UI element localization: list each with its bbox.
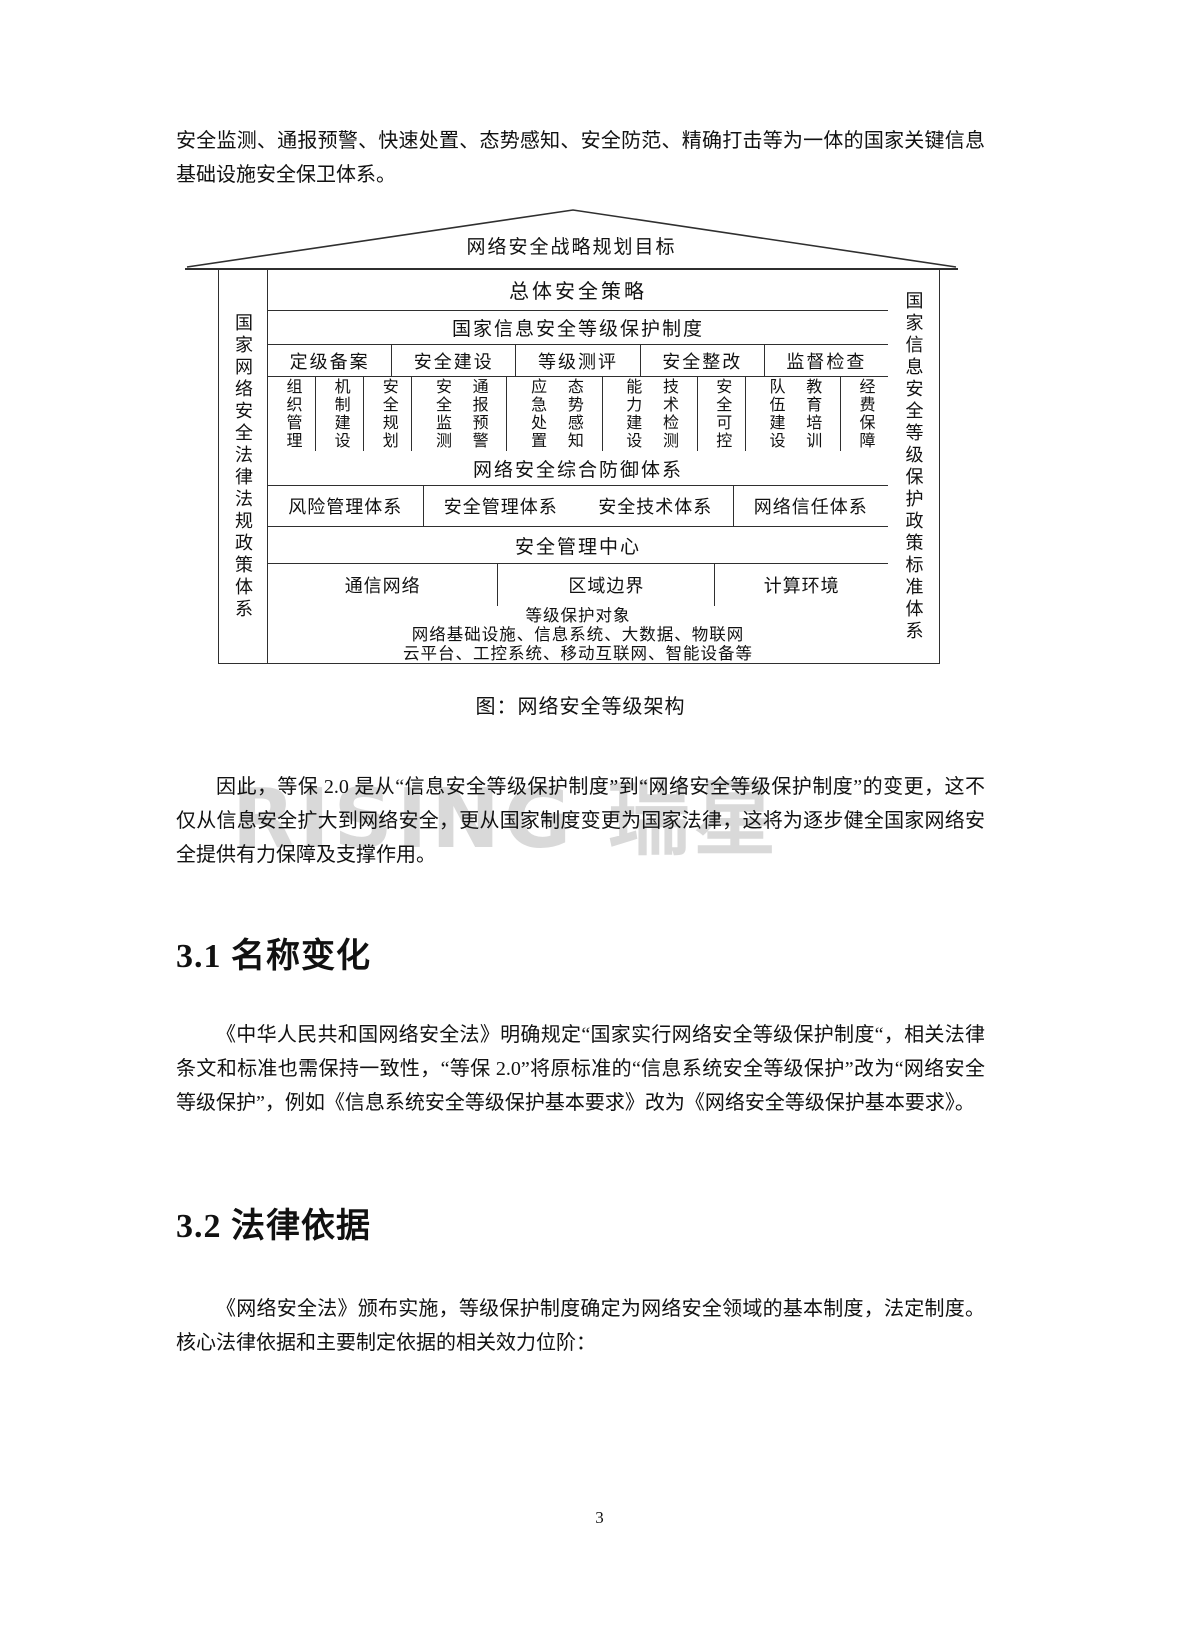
section-3-1-heading: 3.1 名称变化 — [176, 928, 371, 977]
capability-cell: 安全规划 — [363, 377, 411, 451]
process-cell: 监督检查 — [764, 345, 888, 376]
page-number: 3 — [0, 1508, 1199, 1528]
capability-label: 教育培训 — [803, 378, 819, 450]
systems-row: 风险管理体系 安全管理体系 安全技术体系 网络信任体系 — [268, 486, 888, 527]
environment-row: 通信网络 区域边界 计算环境 — [268, 564, 888, 606]
system-label: 安全管理体系 — [444, 493, 558, 519]
process-cell: 安全整改 — [640, 345, 764, 376]
capability-label: 经费保障 — [856, 378, 872, 450]
figure-roof: 网络安全战略规划目标 — [185, 206, 958, 268]
system-label: 安全技术体系 — [598, 493, 712, 519]
right-pillar: 国家信息安全等级保护政策标准体系 — [888, 270, 940, 664]
defense-system-label: 网络安全综合防御体系 — [268, 451, 888, 486]
capability-label: 态势感知 — [565, 378, 581, 450]
section-3-2-paragraph: 《网络安全法》颁布实施，等级保护制度确定为网络安全领域的基本制度，法定制度。核心… — [176, 1292, 985, 1360]
capability-label: 组织管理 — [284, 378, 300, 450]
capability-cell: 能力建设 技术检测 — [602, 377, 697, 451]
capability-cell: 队伍建设 教育培训 — [745, 377, 840, 451]
capability-cell: 机制建设 — [315, 377, 363, 451]
capability-label: 通报预警 — [470, 378, 486, 450]
system-cell: 风险管理体系 — [268, 486, 423, 526]
capability-label: 机制建设 — [332, 378, 348, 450]
protected-objects-title: 等级保护对象 — [526, 606, 631, 625]
after-figure-paragraph: 因此，等保 2.0 是从“信息安全等级保护制度”到“网络安全等级保护制度”的变更… — [176, 770, 985, 872]
capability-cell: 应急处置 态势感知 — [506, 377, 601, 451]
overall-strategy-cell: 总体安全策略 — [268, 270, 888, 311]
left-pillar: 国家网络安全法律法规政策体系 — [218, 270, 268, 664]
capability-cell: 组织管理 — [268, 377, 315, 451]
section-3-2-heading: 3.2 法律依据 — [176, 1198, 371, 1247]
protected-objects-line: 网络基础设施、信息系统、大数据、物联网 — [412, 625, 745, 644]
house-body: 国家网络安全法律法规政策体系 总体安全策略 国家信息安全等级保护制度 定级备案 … — [218, 270, 940, 664]
document-page: RISING 瑞星 安全监测、通报预警、快速处置、态势感知、安全防范、精确打击等… — [0, 0, 1199, 1627]
process-cell: 安全建设 — [391, 345, 515, 376]
capability-cell: 安全监测 通报预警 — [411, 377, 506, 451]
roof-label: 网络安全战略规划目标 — [185, 232, 958, 259]
environment-cell: 计算环境 — [714, 564, 888, 606]
section-3-1-paragraph: 《中华人民共和国网络安全法》明确规定“国家实行网络安全等级保护制度“，相关法律条… — [176, 1018, 985, 1120]
security-architecture-figure: 网络安全战略规划目标 国家网络安全法律法规政策体系 总体安全策略 国家信息安全等… — [185, 206, 958, 664]
capability-cell: 安全可控 — [697, 377, 745, 451]
protection-system-cell: 国家信息安全等级保护制度 — [268, 311, 888, 346]
capability-row: 组织管理 机制建设 安全规划 安全监测 通报预警 应 — [268, 377, 888, 486]
protected-objects-cell: 等级保护对象 网络基础设施、信息系统、大数据、物联网 云平台、工控系统、移动互联… — [268, 606, 888, 663]
capability-label: 应急处置 — [528, 378, 544, 450]
capability-label: 安全监测 — [433, 378, 449, 450]
capability-cell: 经费保障 — [840, 377, 888, 451]
system-cell: 网络信任体系 — [734, 486, 889, 526]
environment-cell: 通信网络 — [268, 564, 497, 606]
capability-label: 队伍建设 — [767, 378, 783, 450]
mgmt-center-cell: 安全管理中心 — [268, 527, 888, 565]
environment-cell: 区域边界 — [497, 564, 714, 606]
right-pillar-label: 国家信息安全等级保护政策标准体系 — [901, 291, 927, 643]
protected-objects-line: 云平台、工控系统、移动互联网、智能设备等 — [403, 644, 753, 663]
capability-label: 能力建设 — [623, 378, 639, 450]
capability-columns: 组织管理 机制建设 安全规划 安全监测 通报预警 应 — [268, 377, 888, 451]
figure-caption: 图：网络安全等级架构 — [176, 690, 985, 719]
figure-main-area: 总体安全策略 国家信息安全等级保护制度 定级备案 安全建设 等级测评 安全整改 … — [268, 270, 888, 664]
capability-label: 技术检测 — [660, 378, 676, 450]
capability-label: 安全可控 — [713, 378, 729, 450]
process-cell: 等级测评 — [515, 345, 639, 376]
intro-paragraph: 安全监测、通报预警、快速处置、态势感知、安全防范、精确打击等为一体的国家关键信息… — [176, 124, 985, 192]
process-row: 定级备案 安全建设 等级测评 安全整改 监督检查 — [268, 345, 888, 377]
capability-label: 安全规划 — [380, 378, 396, 450]
process-cell: 定级备案 — [268, 345, 391, 376]
system-cell-group: 安全管理体系 安全技术体系 — [423, 486, 734, 526]
left-pillar-label: 国家网络安全法律法规政策体系 — [230, 313, 256, 621]
